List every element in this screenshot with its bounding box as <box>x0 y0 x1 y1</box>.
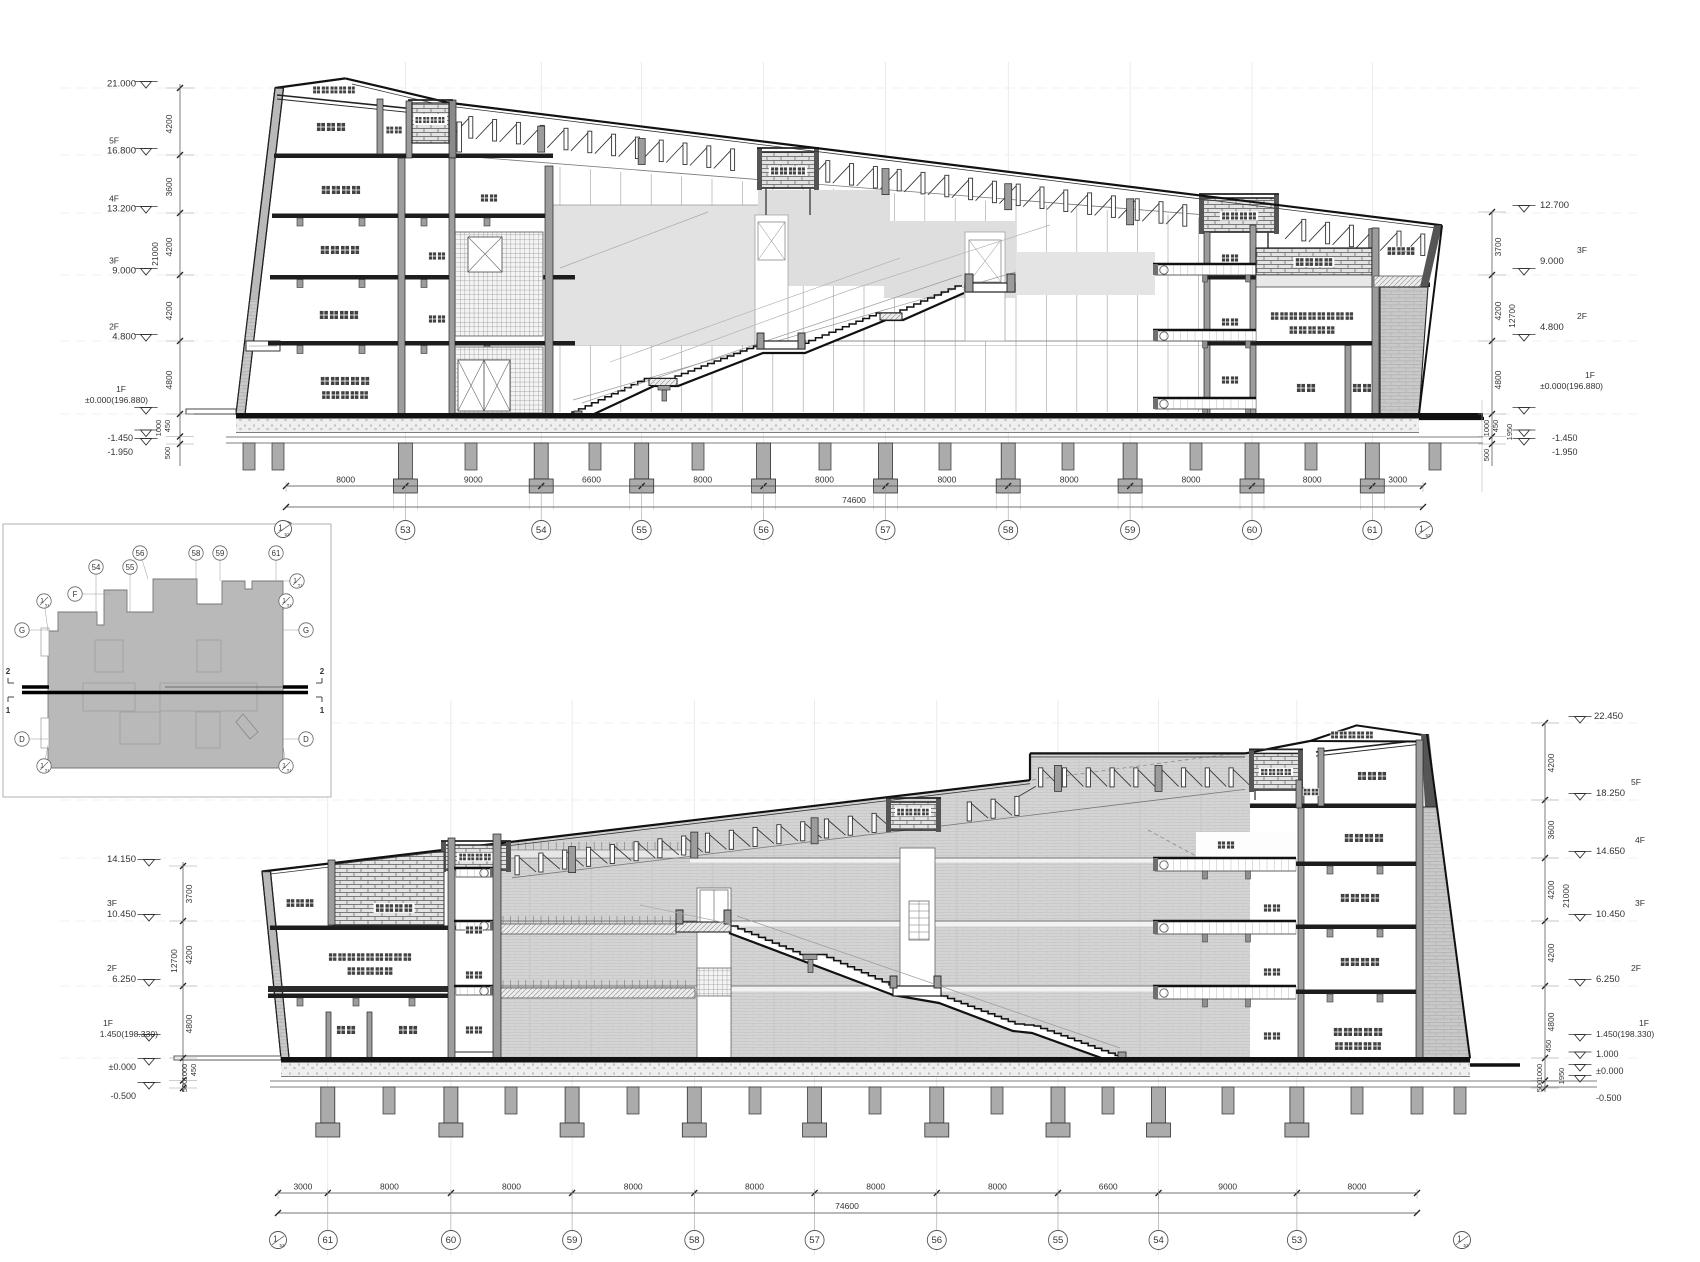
svg-text:21.000: 21.000 <box>107 79 136 90</box>
svg-text:±0.000: ±0.000 <box>109 1062 136 1072</box>
svg-text:1: 1 <box>320 706 325 715</box>
svg-text:3600: 3600 <box>164 177 174 196</box>
svg-text:1: 1 <box>278 524 283 533</box>
svg-text:1000: 1000 <box>180 1064 189 1081</box>
svg-text:74600: 74600 <box>835 1201 859 1211</box>
svg-text:5F: 5F <box>1631 777 1641 787</box>
svg-text:52: 52 <box>1463 1243 1469 1248</box>
svg-text:60: 60 <box>1247 525 1258 536</box>
svg-text:59: 59 <box>567 1235 578 1246</box>
svg-text:9000: 9000 <box>464 475 483 485</box>
svg-text:56: 56 <box>136 549 145 558</box>
svg-text:3600: 3600 <box>1546 820 1556 839</box>
svg-text:53: 53 <box>400 525 411 536</box>
svg-text:1: 1 <box>293 578 297 585</box>
svg-text:1.000: 1.000 <box>1596 1049 1619 1059</box>
svg-text:22.450: 22.450 <box>1594 711 1623 722</box>
svg-text:-0.500: -0.500 <box>110 1091 136 1101</box>
svg-text:G: G <box>19 626 25 635</box>
svg-text:9.000: 9.000 <box>112 266 136 277</box>
svg-text:54: 54 <box>92 563 101 572</box>
svg-text:3F: 3F <box>109 256 119 266</box>
svg-text:4200: 4200 <box>1546 753 1556 772</box>
svg-text:4200: 4200 <box>164 237 174 256</box>
svg-text:21000: 21000 <box>1561 884 1571 908</box>
svg-text:51: 51 <box>45 603 50 608</box>
svg-text:57: 57 <box>880 525 891 536</box>
svg-text:9000: 9000 <box>1218 1182 1237 1192</box>
svg-text:18.250: 18.250 <box>1596 788 1625 799</box>
svg-text:14.650: 14.650 <box>1596 846 1625 857</box>
svg-text:8000: 8000 <box>937 475 956 485</box>
svg-text:-1.450: -1.450 <box>1552 433 1578 443</box>
svg-text:450: 450 <box>189 1064 198 1077</box>
svg-text:D: D <box>19 735 25 744</box>
svg-text:51: 51 <box>287 768 292 773</box>
svg-text:5F: 5F <box>109 136 119 146</box>
svg-text:8000: 8000 <box>502 1182 521 1192</box>
svg-text:1: 1 <box>1419 525 1424 534</box>
svg-text:1.450(198.330): 1.450(198.330) <box>100 1029 158 1039</box>
svg-text:8000: 8000 <box>1303 475 1322 485</box>
svg-text:8000: 8000 <box>624 1182 643 1192</box>
svg-text:1000: 1000 <box>1482 420 1491 437</box>
svg-text:8000: 8000 <box>1182 475 1201 485</box>
svg-text:1000: 1000 <box>154 420 163 437</box>
svg-text:60: 60 <box>446 1235 457 1246</box>
svg-text:74600: 74600 <box>842 495 866 505</box>
svg-text:2F: 2F <box>109 322 119 332</box>
svg-text:4200: 4200 <box>164 114 174 133</box>
svg-text:8000: 8000 <box>380 1182 399 1192</box>
svg-text:55: 55 <box>1053 1235 1064 1246</box>
svg-text:8000: 8000 <box>336 475 355 485</box>
svg-text:56: 56 <box>758 525 769 536</box>
svg-text:-0.500: -0.500 <box>1596 1093 1622 1103</box>
svg-text:8000: 8000 <box>1348 1182 1367 1192</box>
svg-text:4200: 4200 <box>184 945 194 964</box>
svg-text:2F: 2F <box>107 963 117 973</box>
svg-text:10.450: 10.450 <box>107 909 136 920</box>
svg-text:4800: 4800 <box>1546 1012 1556 1031</box>
svg-text:58: 58 <box>689 1235 700 1246</box>
svg-text:3000: 3000 <box>1388 475 1407 485</box>
svg-text:4F: 4F <box>1635 835 1645 845</box>
svg-text:16.800: 16.800 <box>107 146 136 157</box>
svg-text:14.150: 14.150 <box>107 854 136 865</box>
svg-text:2: 2 <box>320 667 325 676</box>
svg-text:1: 1 <box>40 763 44 770</box>
svg-text:500: 500 <box>1535 1080 1544 1093</box>
svg-text:54: 54 <box>536 525 547 536</box>
svg-text:4200: 4200 <box>164 301 174 320</box>
svg-text:450: 450 <box>163 420 172 433</box>
svg-text:4.800: 4.800 <box>1540 322 1564 333</box>
svg-text:8000: 8000 <box>866 1182 885 1192</box>
svg-text:G: G <box>303 626 309 635</box>
svg-text:1: 1 <box>40 598 44 605</box>
svg-text:12700: 12700 <box>1507 304 1517 328</box>
svg-text:4.800: 4.800 <box>112 332 136 343</box>
svg-text:61: 61 <box>272 549 281 558</box>
svg-text:1F: 1F <box>1639 1018 1649 1028</box>
svg-text:1: 1 <box>273 1235 278 1244</box>
svg-text:500: 500 <box>1482 449 1491 462</box>
svg-text:58: 58 <box>192 549 201 558</box>
svg-text:6600: 6600 <box>582 475 601 485</box>
svg-text:55: 55 <box>126 563 135 572</box>
svg-text:10.450: 10.450 <box>1596 909 1625 920</box>
svg-text:51: 51 <box>287 603 292 608</box>
svg-text:-1.450: -1.450 <box>107 433 133 443</box>
svg-text:59: 59 <box>216 549 225 558</box>
svg-text:1: 1 <box>282 763 286 770</box>
svg-text:3F: 3F <box>107 898 117 908</box>
svg-text:58: 58 <box>1003 525 1014 536</box>
svg-text:54: 54 <box>1153 1235 1164 1246</box>
svg-text:51: 51 <box>45 768 50 773</box>
svg-text:450: 450 <box>1491 420 1500 433</box>
svg-text:±0.000(196.880): ±0.000(196.880) <box>85 395 148 405</box>
svg-text:3F: 3F <box>1577 245 1587 255</box>
svg-text:12700: 12700 <box>169 949 179 973</box>
svg-text:8000: 8000 <box>745 1182 764 1192</box>
svg-text:4800: 4800 <box>164 370 174 389</box>
svg-text:8000: 8000 <box>1060 475 1079 485</box>
svg-text:57: 57 <box>809 1235 820 1246</box>
svg-text:2: 2 <box>6 667 11 676</box>
svg-text:1.450(198.330): 1.450(198.330) <box>1596 1029 1654 1039</box>
svg-text:1: 1 <box>282 598 286 605</box>
svg-text:3700: 3700 <box>1493 237 1503 256</box>
svg-text:1F: 1F <box>1585 370 1595 380</box>
svg-text:4200: 4200 <box>1546 943 1556 962</box>
svg-text:-1.950: -1.950 <box>107 447 133 457</box>
svg-text:4200: 4200 <box>1546 880 1556 899</box>
svg-text:52: 52 <box>284 532 290 537</box>
svg-text:±0.000(196.880): ±0.000(196.880) <box>1540 381 1603 391</box>
svg-text:3000: 3000 <box>293 1182 312 1192</box>
svg-text:52: 52 <box>279 1243 285 1248</box>
svg-text:6600: 6600 <box>1099 1182 1118 1192</box>
svg-text:9.000: 9.000 <box>1540 256 1564 267</box>
svg-text:1: 1 <box>6 706 11 715</box>
svg-text:53: 53 <box>1292 1235 1303 1246</box>
svg-text:2F: 2F <box>1577 311 1587 321</box>
svg-text:1: 1 <box>1457 1235 1462 1244</box>
svg-text:450: 450 <box>1544 1040 1553 1053</box>
svg-text:6.250: 6.250 <box>1596 974 1620 985</box>
svg-text:6.250: 6.250 <box>112 974 136 985</box>
svg-text:55: 55 <box>636 525 647 536</box>
svg-text:8000: 8000 <box>815 475 834 485</box>
svg-text:1950: 1950 <box>1557 1068 1566 1085</box>
svg-text:4F: 4F <box>109 194 119 204</box>
svg-text:±0.000: ±0.000 <box>1596 1066 1623 1076</box>
svg-text:12.700: 12.700 <box>1540 200 1569 211</box>
svg-text:500: 500 <box>180 1080 189 1093</box>
svg-text:1F: 1F <box>103 1018 113 1028</box>
svg-text:F: F <box>73 590 78 599</box>
svg-text:-1.950: -1.950 <box>1552 447 1578 457</box>
svg-text:500: 500 <box>163 447 172 460</box>
svg-text:8000: 8000 <box>693 475 712 485</box>
svg-text:13.200: 13.200 <box>107 204 136 215</box>
svg-text:1950: 1950 <box>1505 424 1514 441</box>
svg-text:61: 61 <box>323 1235 334 1246</box>
svg-text:8000: 8000 <box>988 1182 1007 1192</box>
svg-text:1000: 1000 <box>1535 1064 1544 1081</box>
svg-text:59: 59 <box>1125 525 1136 536</box>
svg-text:56: 56 <box>932 1235 943 1246</box>
svg-text:1F: 1F <box>116 384 126 394</box>
svg-text:3700: 3700 <box>184 884 194 903</box>
svg-text:2F: 2F <box>1631 963 1641 973</box>
svg-text:4200: 4200 <box>1493 301 1503 320</box>
svg-text:21000: 21000 <box>150 242 160 266</box>
svg-text:52: 52 <box>1425 533 1431 538</box>
svg-text:61: 61 <box>1367 525 1378 536</box>
svg-text:4800: 4800 <box>1493 370 1503 389</box>
svg-text:4800: 4800 <box>184 1014 194 1033</box>
svg-text:D: D <box>303 735 309 744</box>
svg-text:51: 51 <box>298 583 303 588</box>
svg-text:3F: 3F <box>1635 898 1645 908</box>
